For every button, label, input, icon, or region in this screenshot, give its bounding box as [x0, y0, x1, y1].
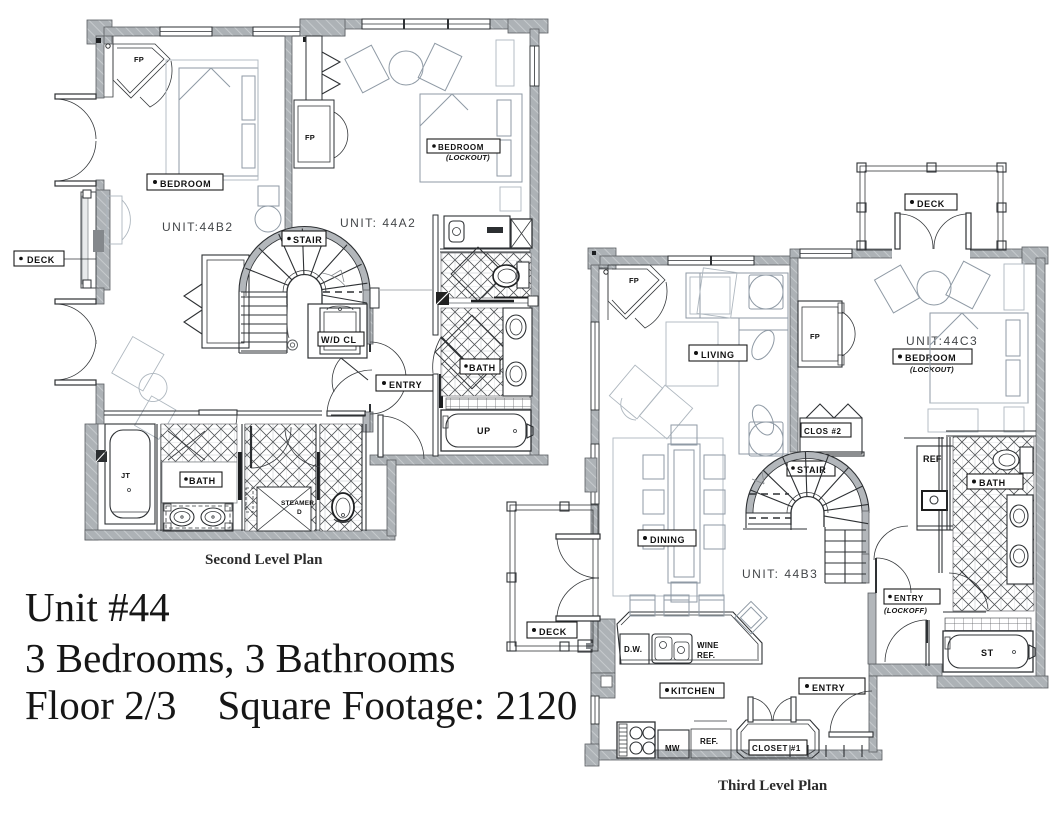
svg-text:CLOS #2: CLOS #2 — [804, 427, 842, 436]
svg-text:(LOCKOUT): (LOCKOUT) — [446, 153, 490, 162]
svg-text:BATH: BATH — [469, 363, 496, 373]
svg-text:WINE: WINE — [697, 641, 719, 650]
svg-text:REF.: REF. — [700, 737, 718, 746]
svg-text:BATH: BATH — [979, 478, 1006, 488]
svg-text:STEAMER: STEAMER — [281, 500, 314, 507]
svg-text:Third Level Plan: Third Level Plan — [718, 778, 828, 794]
svg-text:REF: REF — [923, 454, 942, 464]
svg-text:MW: MW — [665, 744, 680, 753]
svg-text:Unit #44: Unit #44 — [25, 584, 170, 630]
svg-text:UNIT:44C3: UNIT:44C3 — [906, 334, 978, 348]
svg-text:STAIR: STAIR — [293, 235, 322, 245]
svg-text:LIVING: LIVING — [701, 350, 735, 360]
svg-text:(LOCKOUT): (LOCKOUT) — [910, 365, 954, 374]
svg-text:D: D — [297, 509, 302, 516]
svg-text:UNIT: 44A2: UNIT: 44A2 — [340, 216, 416, 230]
svg-text:3 Bedrooms, 3 Bathrooms: 3 Bedrooms, 3 Bathrooms — [25, 635, 455, 681]
svg-text:BEDROOM: BEDROOM — [438, 143, 484, 152]
svg-text:JT: JT — [121, 471, 130, 480]
svg-text:(LOCKOFF): (LOCKOFF) — [884, 606, 927, 615]
svg-text:KITCHEN: KITCHEN — [671, 686, 715, 696]
svg-text:DECK: DECK — [917, 199, 945, 209]
svg-text:Second Level Plan: Second Level Plan — [205, 552, 323, 568]
svg-text:DECK: DECK — [539, 627, 567, 637]
svg-text:ENTRY: ENTRY — [389, 380, 422, 390]
svg-text:UNIT:44B2: UNIT:44B2 — [162, 220, 234, 234]
svg-text:FP: FP — [134, 55, 144, 64]
svg-text:UP: UP — [477, 426, 491, 436]
svg-text:D.W.: D.W. — [624, 645, 642, 654]
svg-text:ENTRY: ENTRY — [894, 594, 924, 603]
svg-text:ENTRY: ENTRY — [812, 683, 845, 693]
svg-text:Floor 2/3 Square Footage: 2: Floor 2/3 Square Footage: 2120 — [25, 682, 577, 728]
svg-text:W/D CL: W/D CL — [321, 335, 357, 345]
svg-text:UNIT: 44B3: UNIT: 44B3 — [742, 567, 818, 581]
svg-text:ST: ST — [981, 648, 994, 658]
svg-text:FP: FP — [810, 332, 820, 341]
svg-text:FP: FP — [629, 276, 639, 285]
svg-text:BEDROOM: BEDROOM — [905, 353, 956, 363]
svg-text:CLOSET #1: CLOSET #1 — [752, 744, 801, 753]
svg-text:REF.: REF. — [697, 651, 715, 660]
svg-text:DINING: DINING — [650, 535, 685, 545]
svg-text:DECK: DECK — [27, 255, 55, 265]
svg-text:BEDROOM: BEDROOM — [160, 179, 211, 189]
svg-text:BATH: BATH — [189, 476, 216, 486]
svg-text:FP: FP — [305, 133, 315, 142]
